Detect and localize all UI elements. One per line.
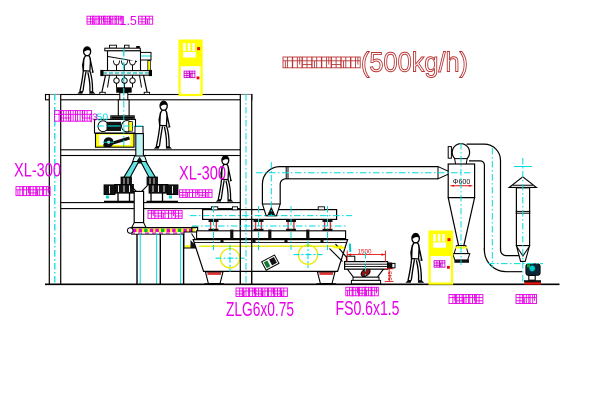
svg-text:FS0.6x1.5: FS0.6x1.5 <box>336 298 400 320</box>
svg-text:ZLG6x0.75: ZLG6x0.75 <box>226 299 294 321</box>
svg-text:XL-300: XL-300 <box>179 163 226 185</box>
svg-text:50: 50 <box>97 112 109 124</box>
svg-text:545: 545 <box>388 271 394 280</box>
svg-text:(500kg/h): (500kg/h) <box>361 47 468 78</box>
svg-text:XL-300: XL-300 <box>14 160 61 182</box>
svg-text:Φ600: Φ600 <box>453 179 471 186</box>
svg-text:1.5: 1.5 <box>120 14 137 28</box>
